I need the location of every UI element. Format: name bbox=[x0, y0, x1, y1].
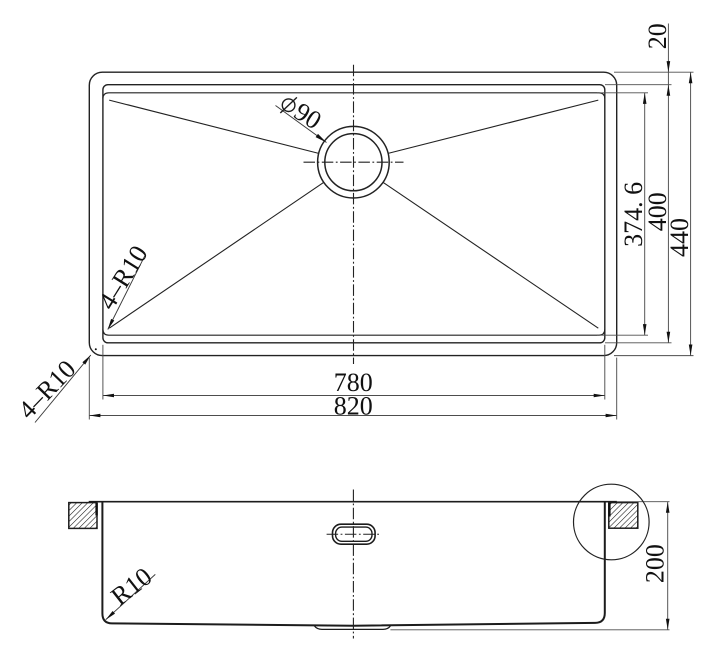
svg-text:20: 20 bbox=[643, 23, 672, 49]
svg-text:440: 440 bbox=[665, 218, 694, 257]
svg-text:820: 820 bbox=[334, 392, 373, 421]
svg-text:200: 200 bbox=[640, 544, 669, 583]
